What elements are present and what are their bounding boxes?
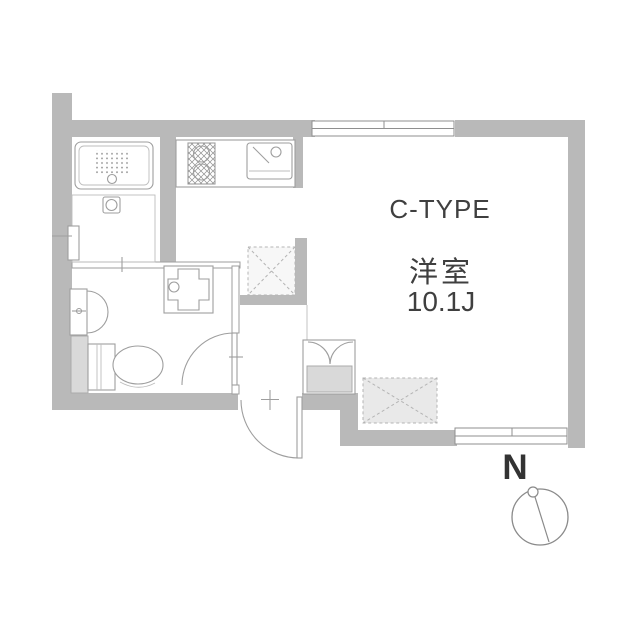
- wall-washroom-top: [72, 262, 240, 268]
- sliding-window-bottom-icon: [455, 428, 567, 444]
- floor-plan-drawing: [0, 0, 640, 640]
- room-size-label: 10.1J: [371, 286, 511, 318]
- compass-icon: [512, 487, 568, 545]
- storage-space-icon: [363, 378, 437, 423]
- north-label: N: [496, 448, 534, 488]
- toilet-icon: [88, 344, 163, 390]
- refrigerator-space-icon: [248, 247, 295, 295]
- wall-fridge-bottom: [240, 295, 307, 305]
- wall-entrance-right: [302, 393, 358, 410]
- washing-machine-pan-icon: [164, 266, 213, 313]
- unit-type-label: C-TYPE: [361, 194, 519, 225]
- wall-washroom-right: [232, 266, 239, 333]
- room-name-label: 洋室: [371, 249, 511, 291]
- wall-bottom-right: [343, 430, 457, 446]
- shoe-cabinet-icon: [303, 340, 355, 394]
- wall-bottom-left: [52, 393, 238, 410]
- kitchen-sink-icon: [247, 143, 292, 179]
- entrance-door-icon: [241, 390, 302, 458]
- bathroom: [68, 142, 155, 272]
- wall-top-left: [72, 120, 315, 137]
- sliding-window-top-icon: [312, 121, 454, 136]
- washroom-door-icon: [182, 333, 243, 385]
- gas-stove-icon: [188, 143, 215, 184]
- kitchen: [176, 140, 295, 187]
- bathtub-icon: [75, 142, 153, 189]
- shower-drain-icon: [103, 197, 120, 213]
- pipe-space: [71, 336, 88, 393]
- wall-bath-kitchen: [160, 137, 176, 263]
- wall-right: [568, 120, 585, 448]
- wall-top-right: [455, 120, 585, 137]
- bathroom-shelf: [68, 226, 79, 260]
- wall-fridge-right: [295, 238, 307, 305]
- washbasin-icon: [70, 289, 108, 335]
- wall-washroom-right-stub: [232, 385, 239, 394]
- floor-plan-page: C-TYPE 洋室 10.1J N: [0, 0, 640, 640]
